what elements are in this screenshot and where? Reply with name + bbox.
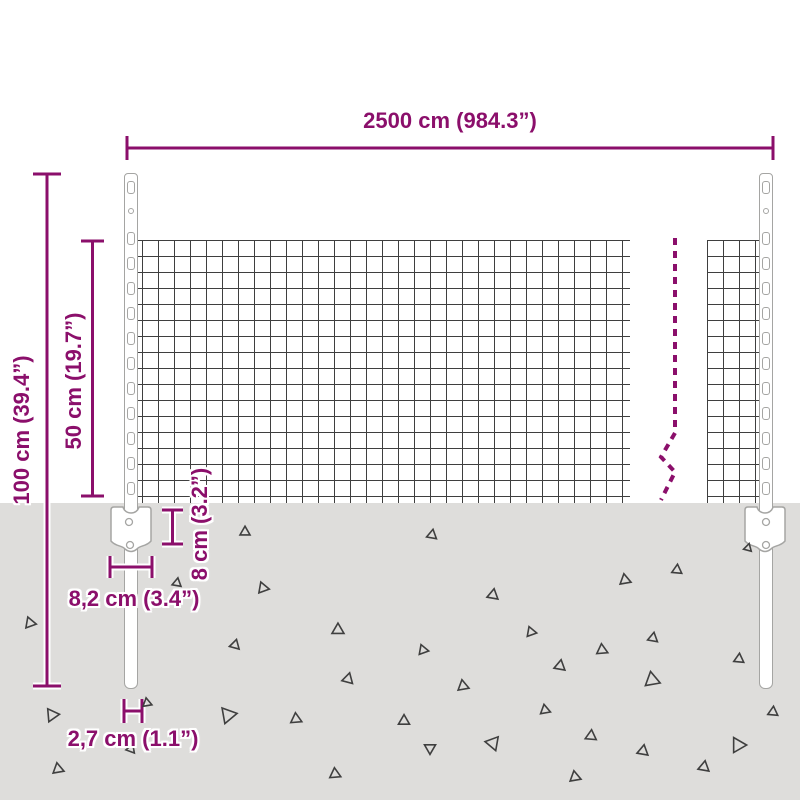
post-hole [763, 208, 769, 214]
wire-mesh-panel-main [126, 240, 630, 503]
mesh-attachment-clip [762, 457, 770, 470]
mesh-attachment-clip [127, 282, 135, 295]
mesh-attachment-clip [762, 282, 770, 295]
panel-break-line [661, 238, 675, 500]
mesh-attachment-clip [762, 382, 770, 395]
mesh-attachment-clip [127, 432, 135, 445]
mesh-attachment-clip [127, 332, 135, 345]
post-width-dimension-label: 2,7 cm (1.1”) [68, 726, 199, 752]
mesh-attachment-clip [127, 457, 135, 470]
post-top-slot [127, 181, 135, 194]
total-height-dimension-label: 100 cm (39.4”) [9, 355, 35, 504]
mesh-attachment-clip [127, 257, 135, 270]
product-dimension-diagram: 2500 cm (984.3”) 100 cm (39.4”) 50 cm (1… [0, 0, 800, 800]
mesh-attachment-clip [762, 407, 770, 420]
anchor-plate-height-dimension-label: 8 cm (3.2”) [187, 468, 213, 581]
width-dimension-label: 2500 cm (984.3”) [363, 108, 537, 134]
mesh-attachment-clip [127, 232, 135, 245]
mesh-attachment-clip [127, 382, 135, 395]
mesh-height-dimension-label: 50 cm (19.7”) [61, 313, 87, 450]
mesh-attachment-clip [762, 432, 770, 445]
post-top-slot [762, 181, 770, 194]
mesh-attachment-clip [762, 332, 770, 345]
mesh-attachment-clip [127, 357, 135, 370]
fence-post-right [759, 173, 773, 689]
mesh-attachment-clip [762, 307, 770, 320]
ground-area [0, 503, 800, 800]
mesh-attachment-clip [762, 357, 770, 370]
mesh-attachment-clip [762, 257, 770, 270]
mesh-attachment-clip [127, 482, 135, 495]
anchor-plate-width-dimension-label: 8,2 cm (3.4”) [69, 586, 200, 612]
mesh-attachment-clip [762, 482, 770, 495]
mesh-attachment-clip [762, 232, 770, 245]
mesh-attachment-clip [127, 407, 135, 420]
mesh-attachment-clip [127, 307, 135, 320]
post-hole [128, 208, 134, 214]
width-dimension-line [127, 136, 773, 160]
